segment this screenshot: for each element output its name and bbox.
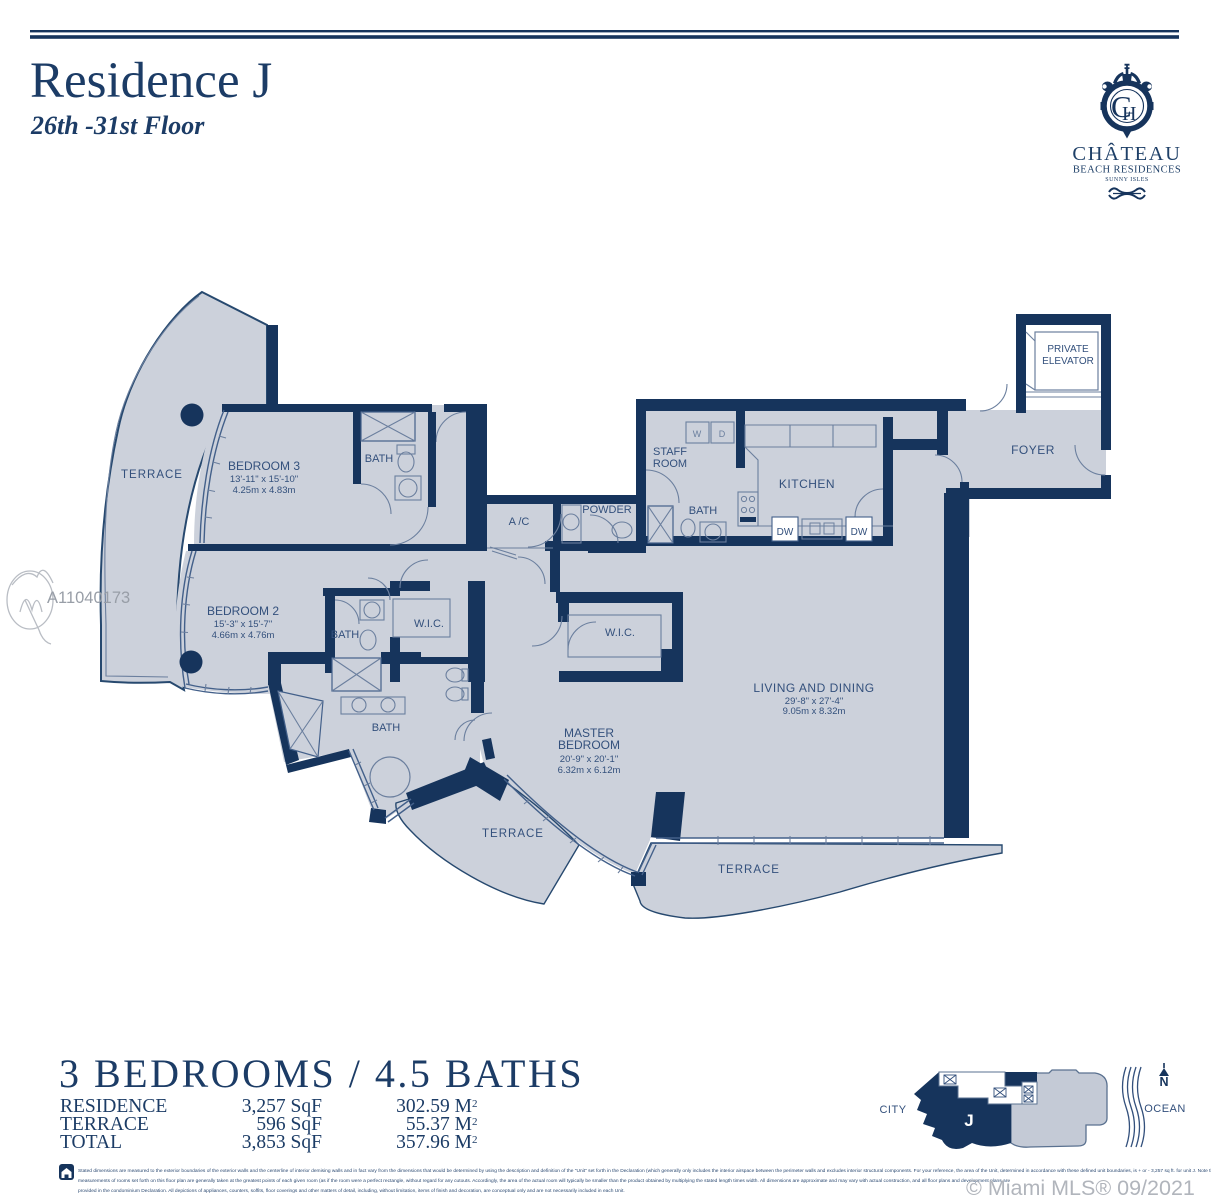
svg-text:A /C: A /C: [509, 516, 530, 528]
svg-text:W.I.C.: W.I.C.: [605, 627, 635, 639]
svg-text:provided in the condominium De: provided in the condominium Declaration.…: [78, 1188, 625, 1194]
svg-text:6.32m x 6.12m: 6.32m x 6.12m: [558, 765, 621, 776]
svg-text:ROOM: ROOM: [653, 458, 687, 470]
svg-text:W: W: [693, 429, 702, 439]
svg-text:2: 2: [472, 1098, 478, 1110]
svg-text:BATH: BATH: [372, 722, 401, 734]
svg-text:TERRACE: TERRACE: [718, 864, 780, 876]
svg-text:BEACH RESIDENCES: BEACH RESIDENCES: [1073, 165, 1181, 176]
svg-text:J: J: [964, 1111, 973, 1130]
svg-text:DW: DW: [777, 527, 794, 538]
svg-text:Stated dimensions are measured: Stated dimensions are measured to the ex…: [78, 1168, 1211, 1174]
svg-text:© Miami MLS® 09/2021: © Miami MLS® 09/2021: [966, 1176, 1195, 1200]
svg-text:20'-9" x 20'-1": 20'-9" x 20'-1": [560, 754, 618, 765]
svg-text:CITY: CITY: [879, 1104, 906, 1116]
svg-text:DW: DW: [851, 527, 868, 538]
svg-text:3 BEDROOMS / 4.5 BATHS: 3 BEDROOMS / 4.5 BATHS: [59, 1051, 584, 1096]
svg-text:Residence J: Residence J: [30, 53, 272, 109]
svg-text:BEDROOM: BEDROOM: [558, 738, 620, 752]
svg-text:4.25m x 4.83m: 4.25m x 4.83m: [233, 485, 296, 496]
svg-text:BATH: BATH: [365, 453, 394, 465]
svg-text:PRIVATE: PRIVATE: [1047, 344, 1089, 355]
svg-text:FOYER: FOYER: [1011, 443, 1055, 457]
svg-text:D: D: [719, 429, 726, 439]
svg-text:BEDROOM 3: BEDROOM 3: [228, 459, 300, 473]
svg-text:15'-3" x 15'-7": 15'-3" x 15'-7": [214, 619, 272, 630]
svg-text:W.I.C.: W.I.C.: [414, 618, 444, 630]
svg-text:TERRACE: TERRACE: [482, 828, 544, 840]
svg-text:357.96 M: 357.96 M: [396, 1132, 472, 1153]
svg-text:TERRACE: TERRACE: [121, 469, 183, 481]
svg-text:2: 2: [472, 1134, 478, 1146]
svg-text:OCEAN: OCEAN: [1144, 1103, 1186, 1115]
svg-text:BEDROOM 2: BEDROOM 2: [207, 604, 279, 618]
svg-text:ELEVATOR: ELEVATOR: [1042, 356, 1094, 367]
svg-text:LIVING AND DINING: LIVING AND DINING: [753, 681, 874, 695]
svg-text:4.66m x 4.76m: 4.66m x 4.76m: [212, 630, 275, 641]
svg-text:STAFF: STAFF: [653, 446, 687, 458]
svg-text:N: N: [1159, 1075, 1168, 1089]
svg-text:9.05m x 8.32m: 9.05m x 8.32m: [783, 706, 846, 717]
svg-text:BATH: BATH: [331, 629, 360, 641]
svg-text:H: H: [1122, 103, 1136, 125]
svg-text:26th -31st Floor: 26th -31st Floor: [30, 111, 205, 140]
svg-text:POWDER: POWDER: [582, 504, 632, 516]
svg-text:2: 2: [472, 1116, 478, 1128]
svg-text:KITCHEN: KITCHEN: [779, 477, 835, 491]
svg-text:3,853 SqF: 3,853 SqF: [242, 1132, 322, 1153]
svg-text:13'-11" x 15'-10": 13'-11" x 15'-10": [230, 474, 298, 485]
svg-text:TOTAL: TOTAL: [60, 1132, 122, 1153]
svg-text:measurements of rooms set fort: measurements of rooms set forth on this …: [78, 1178, 1010, 1184]
svg-text:BATH: BATH: [689, 505, 718, 517]
svg-text:CHÂTEAU: CHÂTEAU: [1072, 142, 1181, 165]
svg-text:A11040173: A11040173: [47, 589, 130, 607]
svg-text:SUNNY ISLES: SUNNY ISLES: [1105, 177, 1148, 183]
